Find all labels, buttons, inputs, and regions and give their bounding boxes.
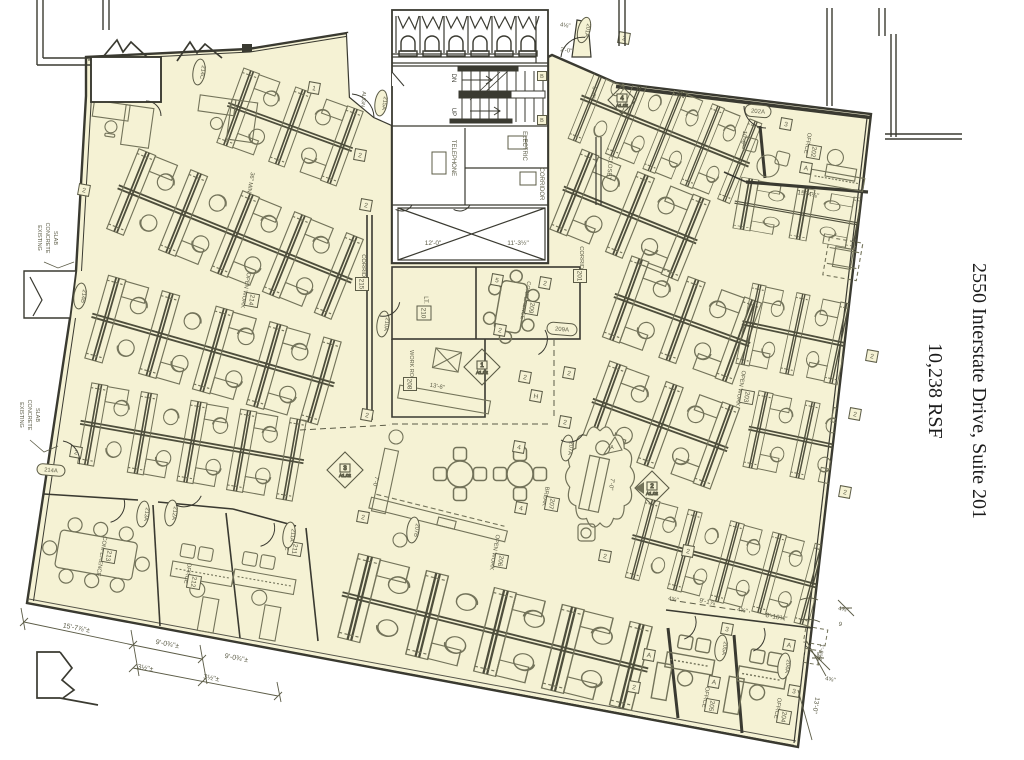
svg-text:LT.: LT.	[422, 296, 428, 304]
svg-text:11'-3½": 11'-3½"	[507, 239, 529, 247]
svg-text:4⅛": 4⅛"	[560, 22, 571, 29]
svg-text:215: 215	[358, 279, 365, 290]
svg-text:EXISTING: EXISTING	[36, 225, 42, 251]
svg-text:9'-0¾"±: 9'-0¾"±	[224, 653, 249, 664]
svg-text:DN: DN	[450, 74, 456, 83]
svg-text:2550 Interstate Drive, Suite 2: 2550 Interstate Drive, Suite 201	[968, 263, 990, 519]
svg-text:214A: 214A	[44, 467, 58, 474]
svg-text:B: B	[540, 118, 544, 124]
svg-text:UP: UP	[450, 108, 456, 116]
svg-text:A1.02: A1.02	[339, 473, 351, 478]
svg-text:208: 208	[406, 379, 413, 390]
svg-text:4⅝": 4⅝"	[824, 676, 835, 684]
svg-text:13'-0": 13'-0"	[810, 696, 820, 714]
svg-text:CONCRETE: CONCRETE	[44, 223, 50, 254]
svg-text:EXISTING: EXISTING	[18, 402, 24, 428]
svg-text:9: 9	[838, 622, 843, 629]
svg-text:B: B	[540, 74, 544, 80]
svg-text:3½"±: 3½"±	[137, 663, 154, 674]
svg-text:4⅝": 4⅝"	[837, 606, 848, 614]
svg-text:CONCRETE: CONCRETE	[26, 400, 32, 431]
svg-text:A1.02: A1.02	[616, 103, 628, 108]
svg-text:12'-0": 12'-0"	[425, 240, 442, 247]
svg-text:209A: 209A	[555, 326, 569, 333]
svg-text:9'-0¾"±: 9'-0¾"±	[155, 639, 180, 650]
svg-text:TELEPHONE: TELEPHONE	[450, 140, 456, 176]
svg-text:CORRIDOR: CORRIDOR	[538, 168, 544, 201]
svg-text:210: 210	[420, 308, 427, 319]
svg-text:SLAB: SLAB	[52, 231, 58, 245]
svg-text:A1.02: A1.02	[476, 370, 488, 375]
svg-text:A1.02: A1.02	[646, 491, 658, 496]
svg-text:10,238 RSF: 10,238 RSF	[924, 343, 946, 439]
svg-text:202A: 202A	[751, 108, 765, 115]
svg-text:201: 201	[576, 271, 583, 282]
svg-text:ELECTRIC: ELECTRIC	[521, 131, 527, 161]
svg-text:SLAB: SLAB	[34, 408, 40, 422]
